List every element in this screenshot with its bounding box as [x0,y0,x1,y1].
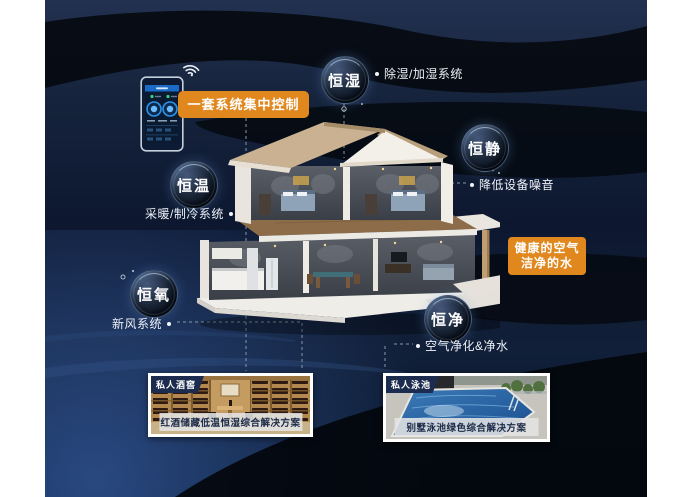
healthy-air-clean-water-callout: 健康的空气 洁净的水 [508,237,586,275]
pool-card: 私人泳池 别墅泳池绿色综合解决方案 [383,373,550,442]
note-purity: 空气净化&净水 [416,337,509,354]
pool-caption: 别墅泳池绿色综合解决方案 [394,418,539,436]
bullet-dot [470,183,474,187]
note-temperature: 采暖/制冷系统 [145,205,233,222]
highlight-line1: 健康的空气 [508,241,586,256]
bubble-quiet: 恒静 [461,124,509,172]
poster-canvas: 一套系统集中控制 恒湿 除湿/加湿系统 恒静 降低设备噪音 恒温 采暖/制冷系统… [0,0,700,497]
wifi-icon [182,62,200,77]
central-control-callout: 一套系统集中控制 [178,91,309,118]
bubble-oxygen: 恒氧 [130,270,178,318]
note-humidity: 除湿/加湿系统 [375,65,463,82]
note-oxygen-text: 新风系统 [112,315,162,332]
bubble-temperature: 恒温 [170,161,218,209]
note-oxygen: 新风系统 [112,315,171,332]
bubble-purity: 恒净 [424,295,472,343]
bullet-dot [416,344,420,348]
bullet-dot [229,212,233,216]
wine-cellar-tag: 私人酒窖 [151,376,204,393]
bubble-humidity: 恒湿 [321,56,369,104]
note-humidity-text: 除湿/加湿系统 [384,65,463,82]
note-purity-text: 空气净化&净水 [425,337,509,354]
background-panel: 一套系统集中控制 恒湿 除湿/加湿系统 恒静 降低设备噪音 恒温 采暖/制冷系统… [45,0,647,497]
wine-cellar-caption: 红酒储藏低温恒湿综合解决方案 [159,413,302,431]
bullet-dot [167,322,171,326]
note-quiet-text: 降低设备噪音 [479,176,554,193]
wine-cellar-card: 私人酒窖 红酒储藏低温恒湿综合解决方案 [148,373,313,437]
bullet-dot [375,72,379,76]
note-quiet: 降低设备噪音 [470,176,554,193]
pool-tag: 私人泳池 [386,376,439,393]
highlight-line2: 洁净的水 [508,256,586,271]
note-temperature-text: 采暖/制冷系统 [145,205,224,222]
